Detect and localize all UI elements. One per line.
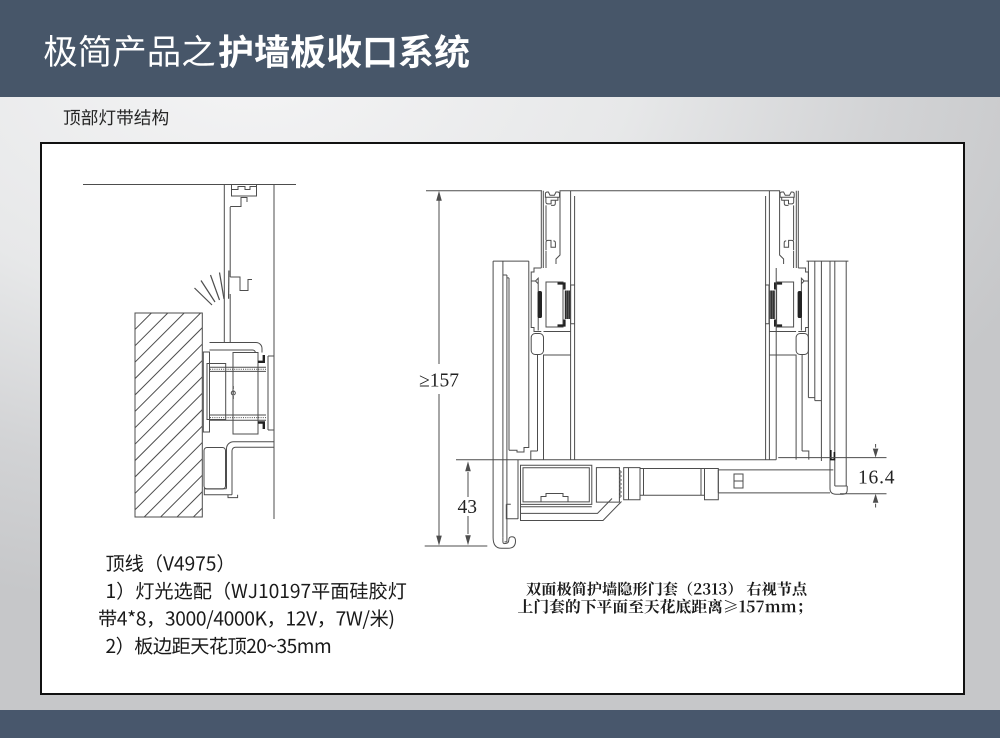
svg-text:≥157: ≥157 [419, 371, 459, 392]
svg-text:16.4: 16.4 [858, 468, 895, 489]
svg-text:43: 43 [458, 497, 478, 518]
